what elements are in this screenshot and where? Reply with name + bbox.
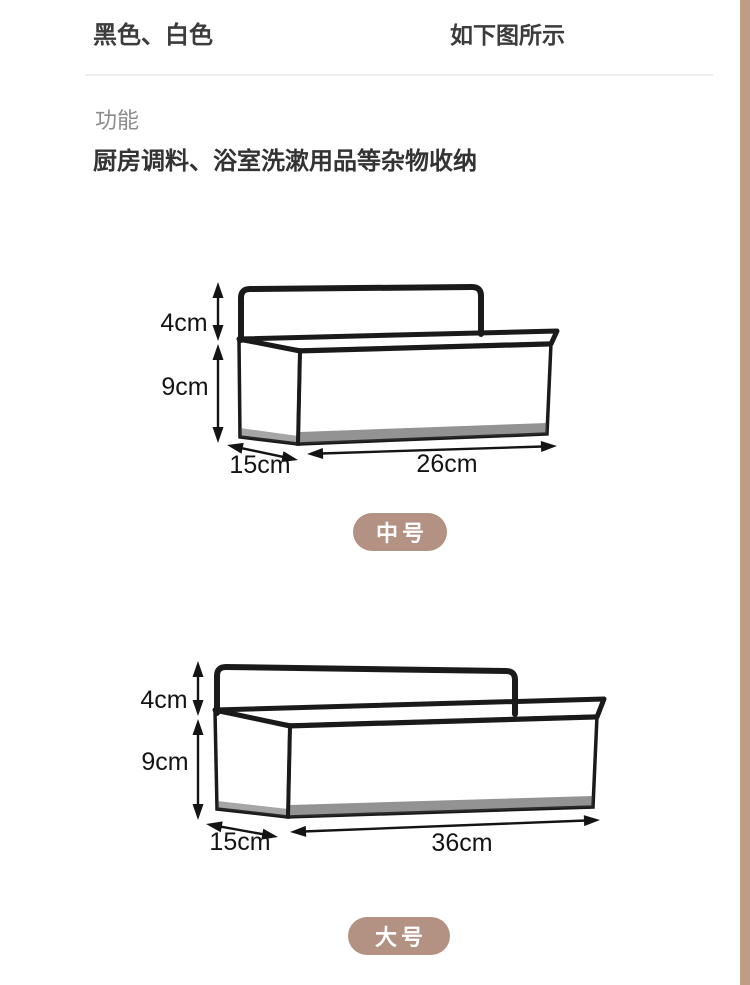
basket-rim: [239, 331, 557, 351]
basket-end-face: [239, 340, 300, 444]
basket-height-label: 9cm: [141, 748, 188, 776]
picture-note-text: 如下图所示: [450, 16, 565, 50]
section-label: 功能: [95, 103, 139, 135]
arrow-right-icon: [541, 441, 557, 452]
basket-end-face: [215, 711, 290, 817]
arrow-up-icon: [213, 282, 224, 298]
arrow-left-icon: [290, 826, 306, 837]
arrow-down-icon: [193, 804, 204, 820]
width-label: 26cm: [416, 450, 477, 478]
basket-height-label: 9cm: [161, 373, 208, 401]
size-badge-large: 大号: [348, 917, 450, 955]
depth-label: 15cm: [229, 451, 290, 479]
wire-basket-medium: [239, 287, 557, 444]
arrow-down-icon: [213, 427, 224, 443]
handle-height-label: 4cm: [140, 686, 187, 714]
arrow-up-icon: [213, 344, 224, 360]
right-edge-strip: [740, 0, 750, 985]
basket-corner-post: [288, 726, 290, 817]
arrow-down-icon: [193, 700, 204, 716]
basket-rim: [215, 699, 604, 726]
width-label: 36cm: [431, 829, 492, 857]
basket-bottom-shade: [298, 423, 547, 444]
basket-illustration-medium: 4cm 9cm 15cm 26cm: [140, 270, 580, 490]
section-description: 厨房调料、浴室洗漱用品等杂物收纳: [93, 141, 477, 176]
basket-bottom-shade: [288, 796, 593, 817]
size-badge-medium: 中号: [353, 513, 447, 551]
arrow-up-icon: [193, 661, 204, 677]
basket-corner-post: [298, 351, 300, 444]
handle-height-label: 4cm: [160, 309, 207, 337]
arrow-up-icon: [193, 719, 204, 735]
basket-illustration-large: 4cm 9cm 15cm 36cm: [120, 630, 640, 870]
depth-label: 15cm: [209, 828, 270, 856]
color-options-text: 黑色、白色: [93, 15, 213, 50]
divider-line: [85, 74, 713, 76]
product-detail-page: 黑色、白色 如下图所示 功能 厨房调料、浴室洗漱用品等杂物收纳: [0, 0, 750, 985]
arrow-right-icon: [584, 815, 600, 826]
arrow-left-icon: [307, 448, 323, 459]
wire-basket-large: [215, 667, 604, 817]
arrow-down-icon: [213, 325, 224, 341]
